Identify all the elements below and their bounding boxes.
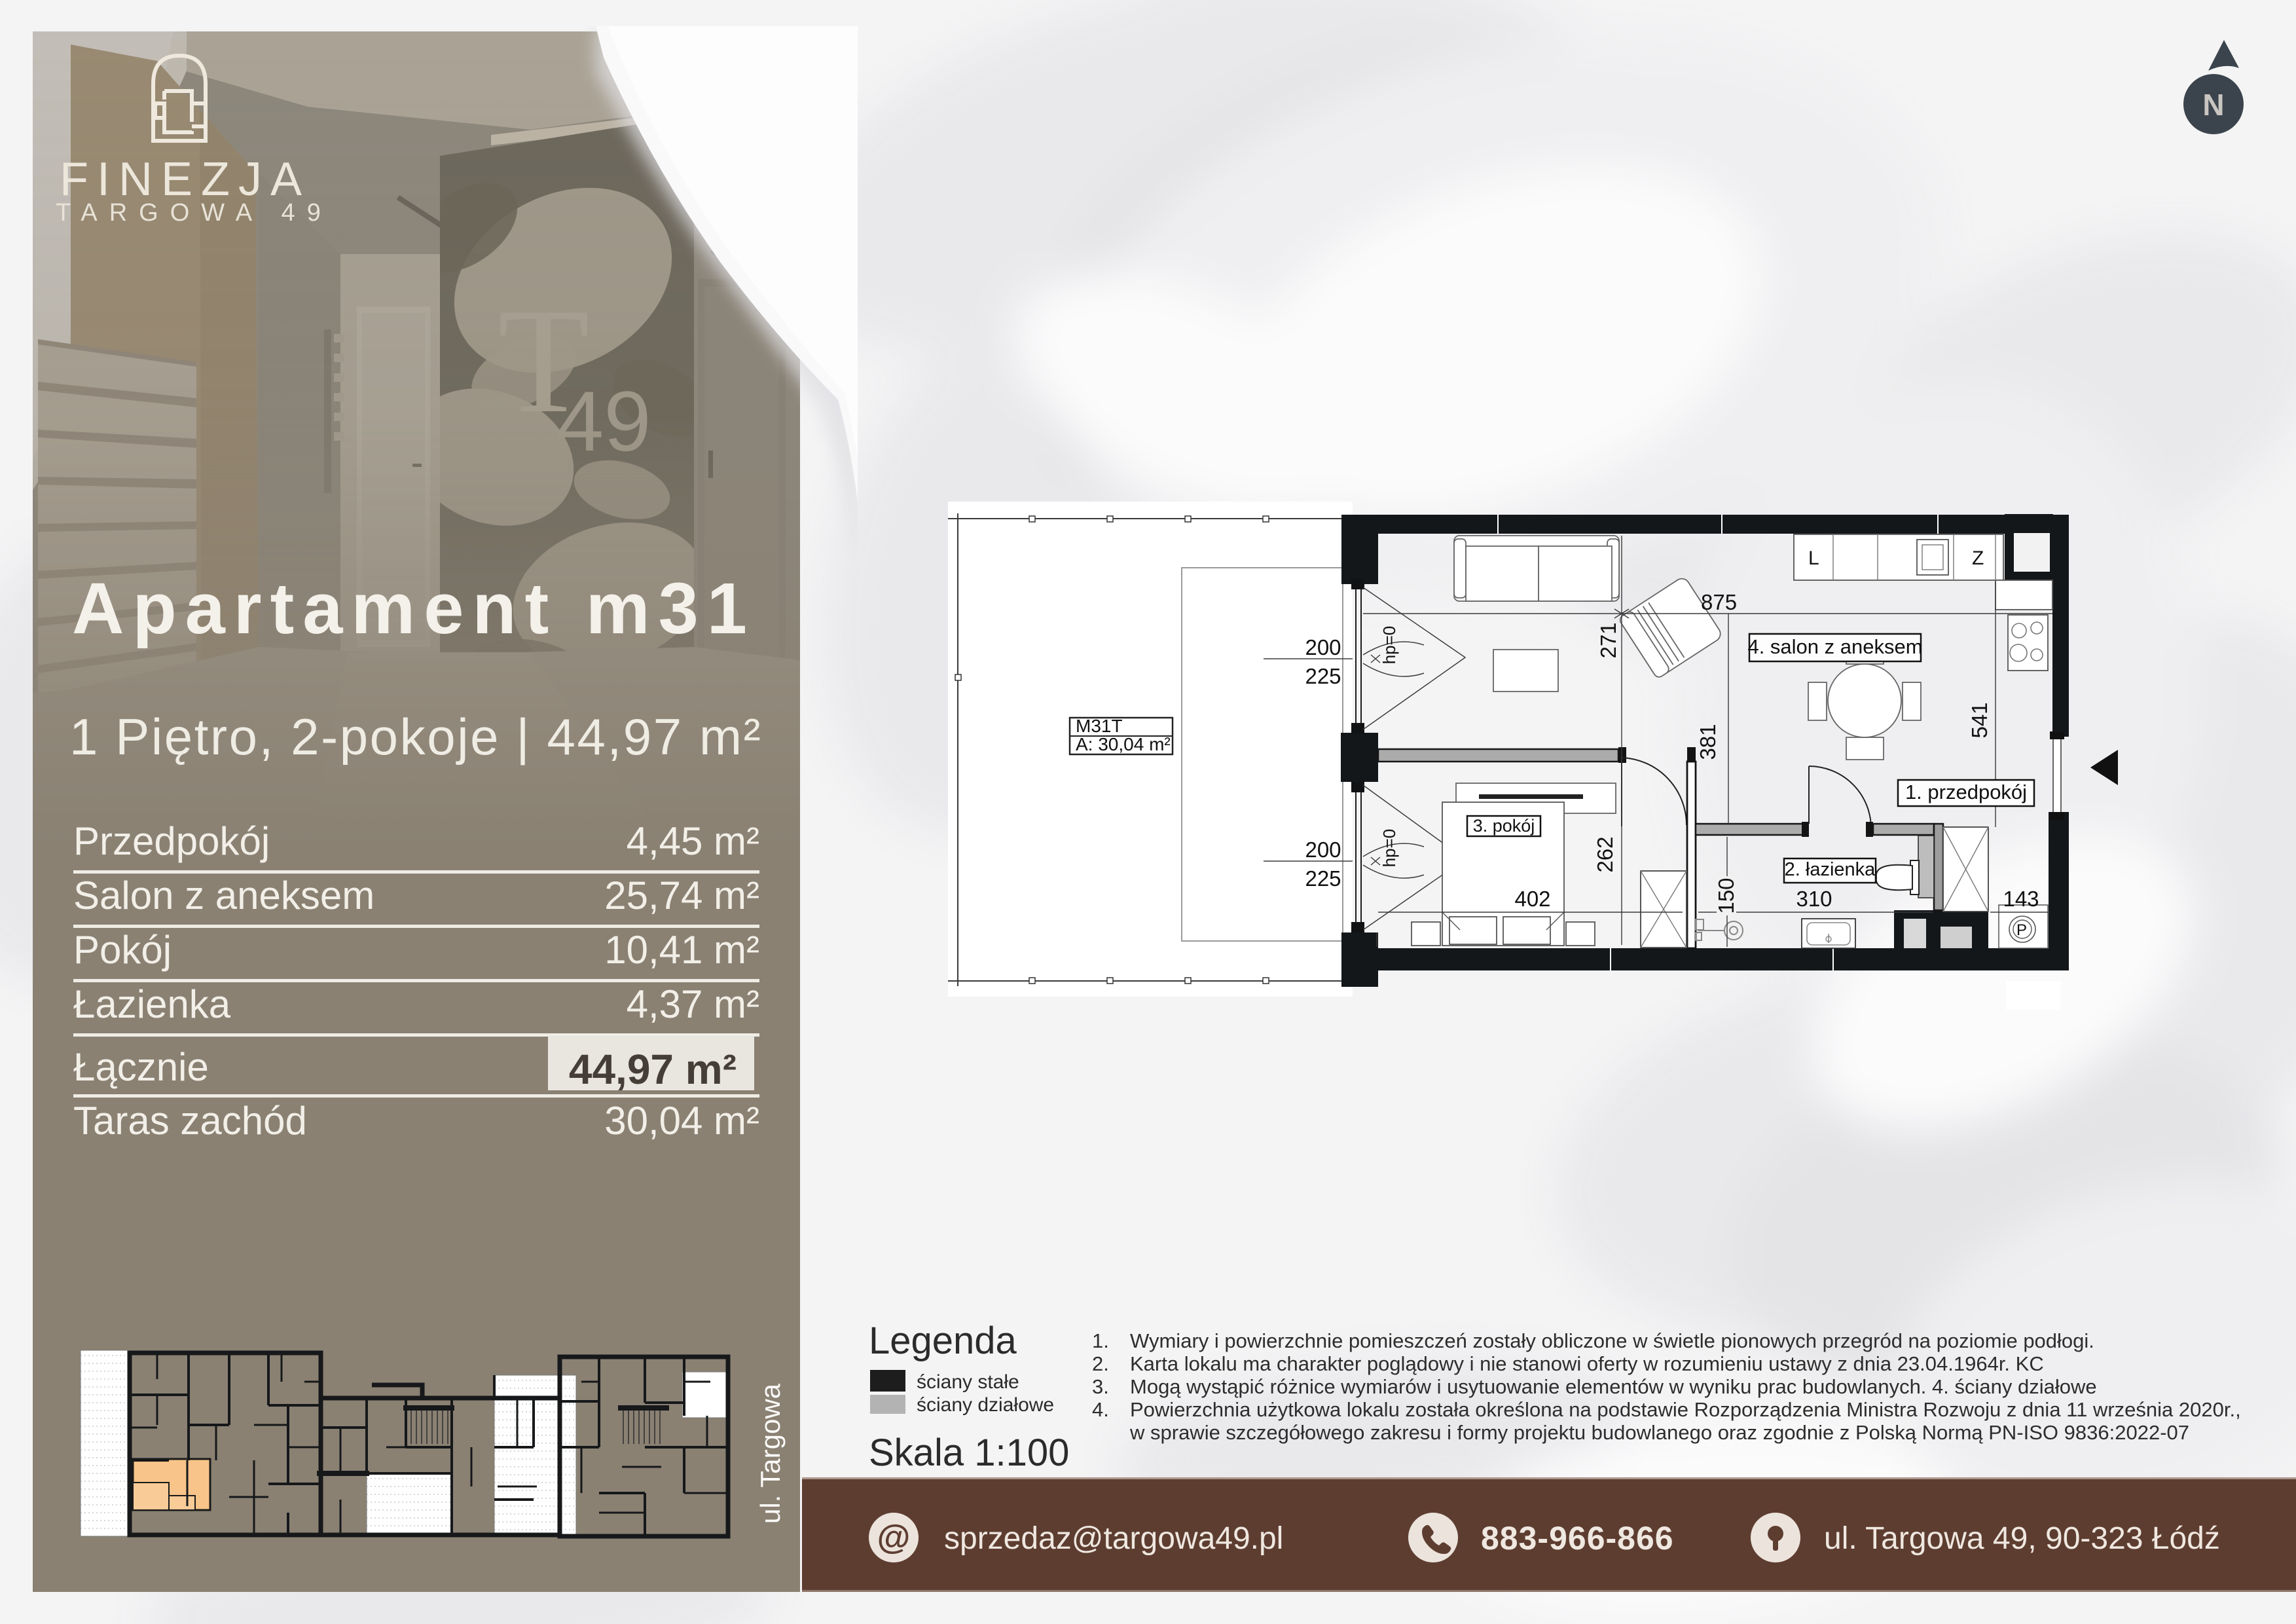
svg-text:P: P xyxy=(2016,921,2027,939)
svg-text:402: 402 xyxy=(1514,887,1550,911)
svg-text:200: 200 xyxy=(1305,838,1341,862)
svg-text:N: N xyxy=(2202,88,2224,122)
svg-text:262: 262 xyxy=(1593,836,1617,872)
svg-text:M31T: M31T xyxy=(1076,716,1123,736)
svg-text:200: 200 xyxy=(1305,635,1341,659)
svg-text:L: L xyxy=(1808,547,1819,569)
svg-text:A: 30,04 m²: A: 30,04 m² xyxy=(1076,734,1171,754)
svg-text:225: 225 xyxy=(1305,866,1341,891)
svg-text:hp=0: hp=0 xyxy=(1379,829,1399,868)
svg-text:2. łazienka: 2. łazienka xyxy=(1785,859,1876,880)
svg-text:4. salon z aneksem: 4. salon z aneksem xyxy=(1747,635,1922,658)
svg-text:1. przedpokój: 1. przedpokój xyxy=(1905,781,2027,803)
svg-text:3. pokój: 3. pokój xyxy=(1473,816,1535,836)
svg-text:150: 150 xyxy=(1714,877,1738,913)
svg-text:271: 271 xyxy=(1596,622,1620,658)
svg-text:541: 541 xyxy=(1967,702,1992,738)
svg-text:875: 875 xyxy=(1701,590,1737,614)
svg-text:381: 381 xyxy=(1696,724,1720,760)
svg-text:310: 310 xyxy=(1796,887,1832,911)
svg-text:143: 143 xyxy=(2003,887,2039,911)
svg-text:hp=0: hp=0 xyxy=(1379,626,1399,665)
svg-text:Z: Z xyxy=(1972,547,1984,569)
svg-text:225: 225 xyxy=(1305,664,1341,688)
